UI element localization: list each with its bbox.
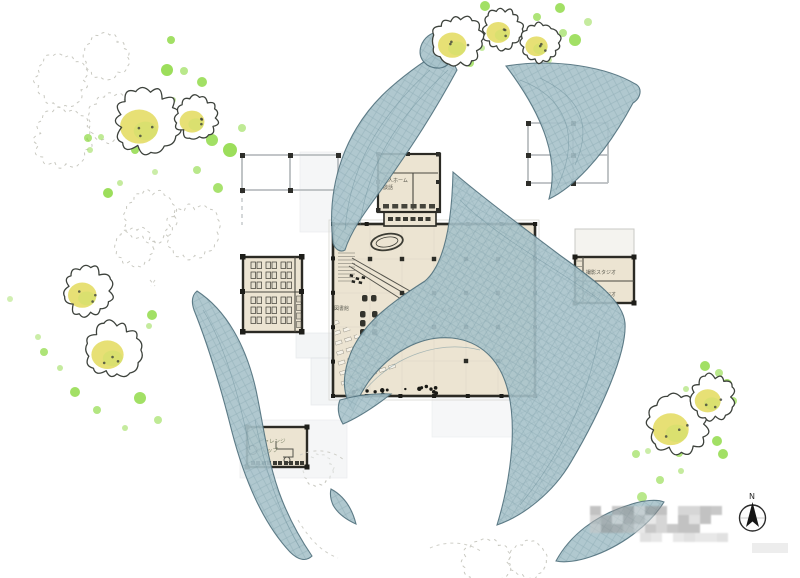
green-dot bbox=[678, 468, 684, 474]
green-dot bbox=[213, 183, 223, 193]
watercolor-tree bbox=[64, 265, 114, 317]
studio-terrace bbox=[575, 229, 634, 257]
green-dot bbox=[152, 169, 158, 175]
sketch-tree bbox=[33, 54, 87, 108]
green-dot bbox=[147, 310, 157, 320]
watercolor-tree bbox=[115, 87, 181, 154]
green-dot bbox=[480, 1, 490, 11]
green-dot bbox=[87, 147, 93, 153]
sketch-tree bbox=[83, 33, 129, 80]
green-dot bbox=[35, 334, 41, 340]
sketch-tree bbox=[123, 190, 177, 244]
green-dot bbox=[7, 296, 13, 302]
green-dot bbox=[84, 134, 92, 142]
sketch-tree bbox=[165, 204, 220, 260]
building-classrooms bbox=[240, 254, 305, 335]
watercolor-tree bbox=[483, 8, 524, 51]
sketch-tree bbox=[509, 540, 547, 578]
studio-label-top: 撮影スタジオ bbox=[586, 269, 616, 276]
green-dot bbox=[134, 392, 146, 404]
green-dot bbox=[40, 348, 48, 356]
watercolor-tree bbox=[86, 320, 143, 377]
green-dot bbox=[683, 386, 689, 392]
site-plan-image: 図書館 展示設計 老人ホーム 談話 bbox=[0, 0, 800, 578]
green-dot bbox=[569, 34, 581, 46]
green-dot bbox=[103, 188, 113, 198]
green-dot bbox=[712, 436, 722, 446]
roof-crescent-east bbox=[506, 63, 640, 199]
watermark-small-block bbox=[752, 543, 788, 553]
green-dot bbox=[555, 3, 565, 13]
site-plan-drawing: 図書館 展示設計 老人ホーム 談話 bbox=[0, 0, 800, 578]
green-dot bbox=[223, 143, 237, 157]
green-dot bbox=[180, 67, 188, 75]
green-dot bbox=[645, 448, 651, 454]
green-dot bbox=[146, 323, 152, 329]
green-dot bbox=[154, 416, 162, 424]
north-compass: N bbox=[740, 492, 766, 531]
roof-wedge-2 bbox=[330, 489, 356, 524]
green-dot bbox=[197, 77, 207, 87]
green-dot bbox=[700, 361, 710, 371]
green-dot bbox=[656, 476, 664, 484]
sketch-tree bbox=[115, 227, 156, 266]
green-dot bbox=[193, 166, 201, 174]
green-dot bbox=[167, 36, 175, 44]
green-dot bbox=[117, 180, 123, 186]
green-dot bbox=[161, 64, 173, 76]
green-dot bbox=[584, 18, 592, 26]
watercolor-tree bbox=[520, 22, 561, 63]
green-dot bbox=[70, 387, 80, 397]
sketch-tree bbox=[33, 107, 92, 168]
green-dot bbox=[632, 450, 640, 458]
library-label: 図書館 bbox=[334, 305, 349, 312]
roof-wedge-1 bbox=[338, 394, 391, 424]
green-dot bbox=[122, 425, 128, 431]
green-dot bbox=[533, 13, 541, 21]
sketch-tree bbox=[461, 539, 511, 578]
watercolor-tree bbox=[174, 95, 218, 139]
green-dot bbox=[718, 449, 728, 459]
hall-entry-protrusion bbox=[384, 211, 436, 226]
compass-n-label: N bbox=[749, 492, 755, 501]
green-dot bbox=[93, 406, 101, 414]
green-dot bbox=[238, 124, 246, 132]
green-dot bbox=[98, 134, 104, 140]
green-dot bbox=[57, 365, 63, 371]
